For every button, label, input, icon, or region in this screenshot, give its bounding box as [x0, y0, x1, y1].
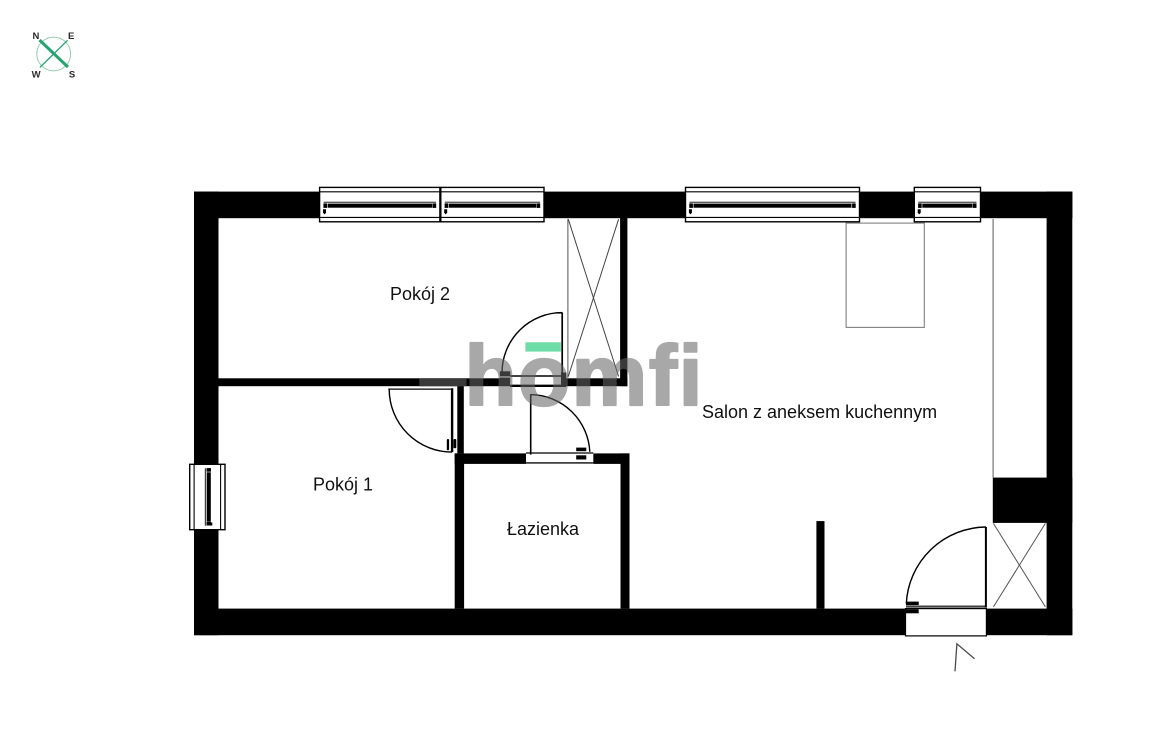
svg-text:W: W: [32, 70, 41, 81]
svg-text:homfi: homfi: [465, 329, 704, 424]
svg-text:Pokój 2: Pokój 2: [390, 284, 450, 304]
svg-text:E: E: [68, 31, 74, 42]
svg-text:Pokój 1: Pokój 1: [313, 474, 373, 494]
svg-text:S: S: [69, 69, 75, 80]
svg-text:Łazienka: Łazienka: [507, 519, 580, 539]
svg-text:Salon z aneksem kuchennym: Salon z aneksem kuchennym: [702, 402, 937, 422]
svg-text:N: N: [32, 31, 39, 42]
